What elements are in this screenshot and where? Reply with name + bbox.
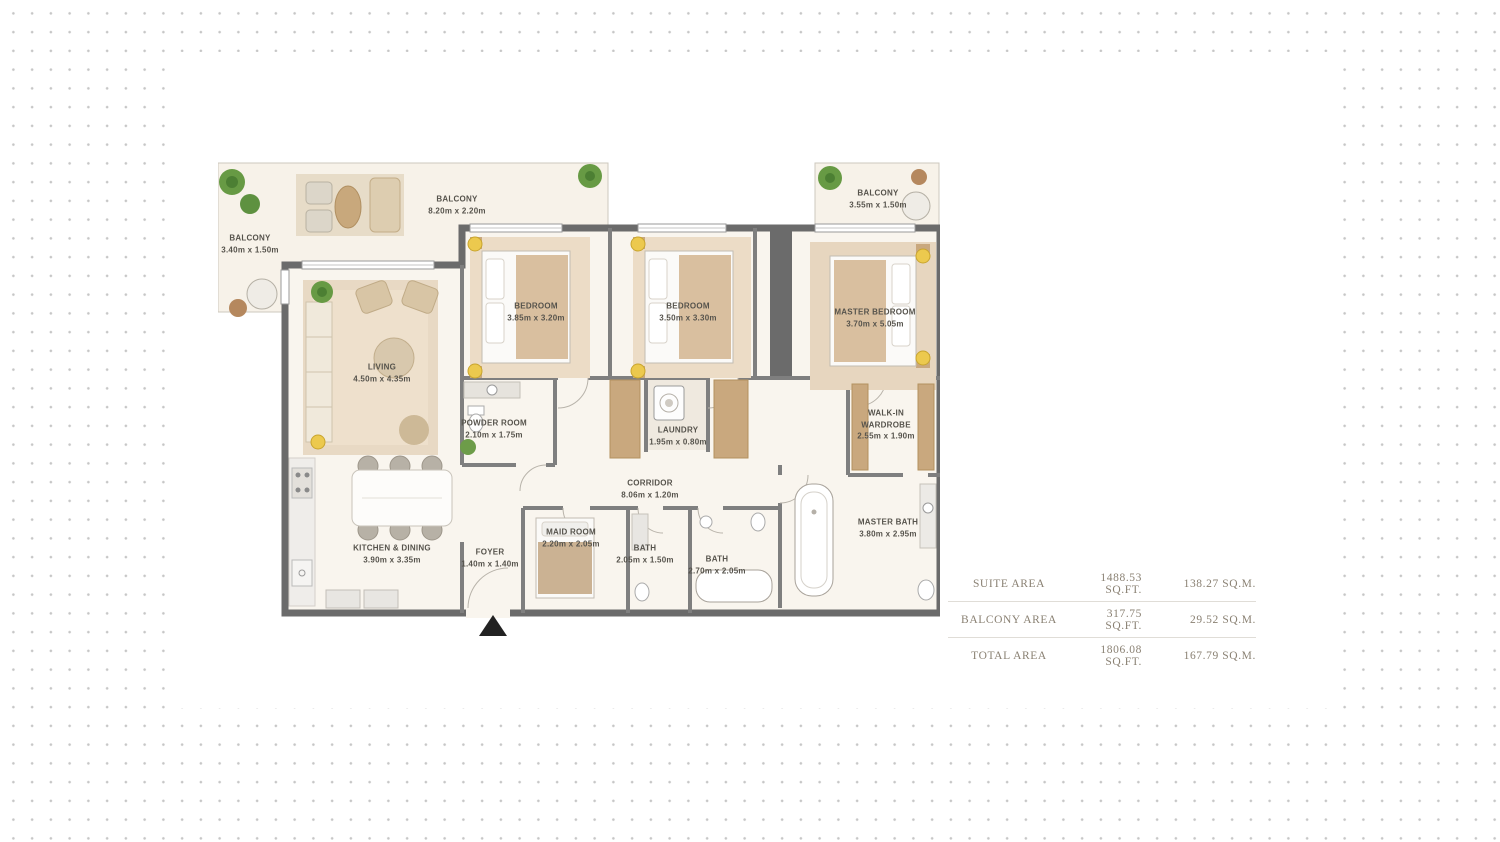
round-chair-icon (247, 279, 277, 309)
area-sqm: 29.52 SQ.M. (1156, 614, 1256, 626)
area-label: BALCONY AREA (948, 614, 1070, 626)
oval-table-icon (335, 186, 361, 228)
side-table-icon (229, 299, 247, 317)
room-dims: 3.50m x 3.30m (659, 312, 717, 324)
room-dims: 2.05m x 1.50m (616, 554, 674, 566)
room-name: BATH (616, 542, 674, 554)
blanket (538, 542, 592, 594)
lamp-icon (468, 364, 482, 378)
toilet-icon (751, 513, 765, 531)
room-label-living: LIVING4.50m x 4.35m (353, 361, 411, 384)
room-dims: 8.20m x 2.20m (428, 205, 486, 217)
appliance-icon (364, 590, 398, 608)
room-name: LIVING (353, 361, 411, 373)
toilet-icon (635, 583, 649, 601)
room-name: LAUNDRY (649, 424, 707, 436)
area-sqm: 138.27 SQ.M. (1156, 578, 1256, 590)
room-label-foyer: FOYER1.40m x 1.40m (461, 546, 519, 569)
room-name: MASTER BEDROOM (834, 306, 915, 318)
lamp-icon (631, 237, 645, 251)
room-label-balcony-left: BALCONY3.40m x 1.50m (221, 232, 279, 255)
room-name: POWDER ROOM (461, 417, 527, 429)
room-dims: 1.40m x 1.40m (461, 558, 519, 570)
table-row: BALCONY AREA 317.75 SQ.FT. 29.52 SQ.M. (948, 601, 1256, 637)
entrance-arrow-icon (479, 615, 507, 636)
room-label-kitchen-dining: KITCHEN & DINING3.90m x 3.35m (353, 542, 431, 565)
room-name: KITCHEN & DINING (353, 542, 431, 554)
room-dims: 2.55m x 1.90m (850, 431, 922, 443)
lamp-icon (631, 364, 645, 378)
room-label-balcony-right: BALCONY3.55m x 1.50m (849, 187, 907, 210)
toilet-icon (918, 580, 934, 600)
room-label-walk-in-wardrobe: WALK-IN WARDROBE2.55m x 1.90m (850, 408, 922, 443)
room-name: MAID ROOM (542, 526, 600, 538)
room-name: BEDROOM (507, 300, 565, 312)
room-label-master-bath: MASTER BATH3.80m x 2.95m (858, 516, 918, 539)
lamp-icon (916, 351, 930, 365)
room-label-bedroom-1: BEDROOM3.85m x 3.20m (507, 300, 565, 323)
lamp-icon (916, 249, 930, 263)
room-label-maid-room: MAID ROOM2.20m x 2.05m (542, 526, 600, 549)
room-label-laundry: LAUNDRY1.95m x 0.80m (649, 424, 707, 447)
table-row: TOTAL AREA 1806.08 SQ.FT. 167.79 SQ.M. (948, 637, 1256, 673)
area-sqft: 317.75 SQ.FT. (1070, 608, 1156, 632)
stove-icon (292, 468, 312, 498)
room-label-master-bedroom: MASTER BEDROOM3.70m x 5.05m (834, 306, 915, 329)
room-dims: 3.85m x 3.20m (507, 312, 565, 324)
room-name: FOYER (461, 546, 519, 558)
room-label-bath-2: BATH2.70m x 2.05m (688, 553, 746, 576)
side-table-icon (911, 169, 927, 185)
sink-icon (292, 560, 312, 586)
room-name: BATH (688, 553, 746, 565)
room-dims: 3.80m x 2.95m (858, 528, 918, 540)
room-name: BALCONY (849, 187, 907, 199)
room-name: CORRIDOR (621, 477, 679, 489)
area-sqft: 1806.08 SQ.FT. (1070, 644, 1156, 668)
room-dims: 1.95m x 0.80m (649, 436, 707, 448)
lamp-icon (468, 237, 482, 251)
room-label-powder-room: POWDER ROOM2.10m x 1.75m (461, 417, 527, 440)
area-sqm: 167.79 SQ.M. (1156, 650, 1256, 662)
plant-icon (460, 439, 476, 455)
room-dims: 3.55m x 1.50m (849, 199, 907, 211)
room-label-bedroom-2: BEDROOM3.50m x 3.30m (659, 300, 717, 323)
room-name: WALK-IN WARDROBE (850, 408, 922, 431)
page: BALCONY3.40m x 1.50m BALCONY8.20m x 2.20… (0, 0, 1500, 842)
dining-set (352, 456, 452, 540)
area-label: SUITE AREA (948, 578, 1070, 590)
content-card: BALCONY3.40m x 1.50m BALCONY8.20m x 2.20… (170, 52, 1330, 708)
room-name: BEDROOM (659, 300, 717, 312)
room-label-corridor: CORRIDOR8.06m x 1.20m (621, 477, 679, 500)
closet (714, 380, 748, 458)
pouf-icon (399, 415, 429, 445)
room-label-bath-1: BATH2.05m x 1.50m (616, 542, 674, 565)
room-dims: 2.20m x 2.05m (542, 538, 600, 550)
room-dims: 8.06m x 1.20m (621, 489, 679, 501)
table-row: SUITE AREA 1488.53 SQ.FT. 138.27 SQ.M. (948, 566, 1256, 601)
room-label-balcony-top: BALCONY8.20m x 2.20m (428, 193, 486, 216)
room-dims: 4.50m x 4.35m (353, 373, 411, 385)
area-summary-table: SUITE AREA 1488.53 SQ.FT. 138.27 SQ.M. B… (948, 566, 1256, 673)
floorplan-drawing (218, 162, 940, 640)
sink-icon (700, 516, 712, 528)
room-name: MASTER BATH (858, 516, 918, 528)
room-dims: 3.40m x 1.50m (221, 244, 279, 256)
lamp-icon (311, 435, 325, 449)
room-dims: 3.70m x 5.05m (834, 318, 915, 330)
room-dims: 3.90m x 3.35m (353, 554, 431, 566)
vanity-icon (920, 484, 936, 548)
closet (610, 380, 640, 458)
floorplan: BALCONY3.40m x 1.50m BALCONY8.20m x 2.20… (218, 162, 940, 640)
room-name: BALCONY (428, 193, 486, 205)
room-dims: 2.10m x 1.75m (461, 429, 527, 441)
area-label: TOTAL AREA (948, 650, 1070, 662)
appliance-icon (326, 590, 360, 608)
area-sqft: 1488.53 SQ.FT. (1070, 572, 1156, 596)
room-name: BALCONY (221, 232, 279, 244)
room-dims: 2.70m x 2.05m (688, 565, 746, 577)
entrance-opening (466, 608, 510, 618)
wall-chunk (770, 228, 792, 380)
